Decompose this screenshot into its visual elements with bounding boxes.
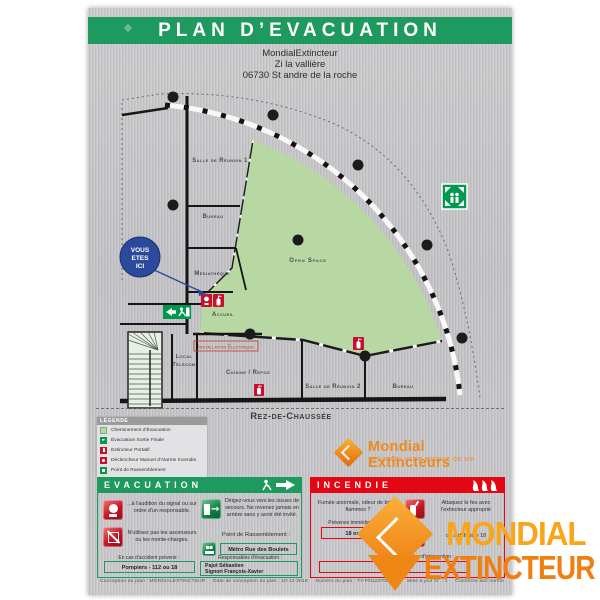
flame-diamond-icon [334, 438, 364, 468]
incendie-responsible-value [319, 561, 469, 573]
room-label-local-telecom-1: Local [176, 354, 193, 360]
poster-title: PLAN D’EVACUATION [158, 20, 442, 41]
address-line-1: MondialExtincteur [150, 48, 450, 59]
room-label-mediatheque: Médiathèque [194, 271, 229, 277]
legend: Légende Cheminement d'Évacuation Évacuat… [97, 417, 207, 477]
exit-direction-icon [201, 499, 221, 519]
evacuation-responsible-names: Pajot Sébastien Signori François-Xavier [200, 561, 298, 576]
assembly-icon [100, 467, 107, 474]
extinguisher-icon-cuisine [254, 384, 264, 396]
legend-item: Cheminement d'Évacuation [97, 425, 207, 435]
assembly-point-label: Point de Rassemblement : [212, 532, 300, 538]
extinguisher-icon-openspace [353, 337, 364, 350]
alarm-icon [100, 457, 107, 464]
address-line-2: Zi la vallière [150, 59, 450, 70]
legend-item: Extincteur Portatif [97, 445, 207, 455]
evacuation-plan-poster: PLAN D’EVACUATION MondialExtincteur Zi l… [88, 8, 512, 595]
plan-metadata-footer: Conception du plan : MONDIALEXTINCTEUR D… [100, 579, 504, 584]
extinguisher-icon-accueil [213, 294, 224, 307]
svg-text:VOUS: VOUS [131, 247, 150, 254]
manual-alarm-icon [201, 294, 212, 307]
dashed-separator [96, 408, 504, 409]
running-man-arrow-icon [262, 479, 296, 491]
fire-extinguisher-icon [405, 499, 425, 519]
svg-text:ETES: ETES [132, 255, 150, 262]
assembly-point-value: Métro Rue des Boulets [220, 543, 297, 555]
room-label-installation-electrique: Installation Électrique [198, 344, 254, 351]
room-label-bureau-1: Bureau [203, 214, 224, 220]
fire-notify-label: Prévenez immédiatement : [315, 520, 401, 526]
evacuation-signal-text: ...à l'audition du signal ou sur ordre d… [126, 501, 198, 515]
diamond-icon [123, 24, 131, 32]
evacuation-elevator-text: N'utilisez pas les ascenseurs ou les mon… [126, 530, 198, 544]
brand-name: Mondial Extincteurs [368, 439, 505, 471]
evacuation-instructions-panel: ...à l'audition du signal ou sur ordre d… [97, 492, 302, 578]
you-are-here-badge: VOUS ETES ICI [120, 237, 206, 296]
room-label-cuisine-repos: Cuisine / Repos [226, 370, 270, 376]
extinguisher-icon [100, 447, 107, 454]
legend-item: Point de Rassemblement [97, 465, 207, 475]
room-label-open-space: Open Space [289, 258, 326, 264]
brand-logo: Mondial Extincteurs sécuriser votre espa… [335, 436, 505, 472]
evacuation-path-swatch-icon [100, 427, 107, 434]
brand-tagline: sécuriser votre espace de vie [369, 456, 475, 463]
poster-title-bar: PLAN D’EVACUATION [88, 17, 512, 44]
accident-value: Pompiers - 112 ou 18 [104, 561, 195, 573]
alarm-signal-icon [103, 500, 123, 520]
fire-fallback-text: ou à défaut le 18 [429, 533, 503, 540]
fire-alert-text: Fumée anormale, odeur de brûlé, flammes … [315, 500, 401, 514]
emergency-exit-sign-icon [163, 305, 191, 319]
address-line-3: 06730 St andre de la roche [150, 70, 450, 81]
emergency-phone-icon [405, 527, 425, 547]
floor-label: Rez-de-Chaussée [231, 411, 351, 422]
room-label-salle-reunion-1: Salle de Réunion 1 [192, 158, 248, 164]
incendie-responsible-label: Responsables d'intervention : [366, 554, 476, 560]
room-label-bureau-2: Bureau [393, 384, 414, 390]
flames-icon [471, 479, 499, 491]
room-label-salle-reunion-2: Salle de Réunion 2 [305, 384, 361, 390]
floor-plan: Installation Électrique Salle de Réunion… [90, 88, 510, 423]
assembly-point-small-icon [202, 542, 216, 556]
evacuation-section-header: EVACUATION [97, 477, 302, 492]
fire-attack-text: Attaquez le feu avec l'extincteur approp… [429, 500, 503, 514]
legend-item: Évacuation Sortie Finale [97, 435, 207, 445]
svg-text:ICI: ICI [136, 263, 145, 270]
exit-icon [100, 437, 107, 444]
no-elevator-icon [103, 527, 123, 547]
staircase [128, 332, 162, 408]
assembly-point-icon [442, 184, 467, 209]
incendie-section-header: INCENDIE [310, 477, 505, 492]
evacuation-exits-text: Dirigez-vous vers les issues de secours.… [224, 498, 300, 519]
brand-watermark-small [94, 25, 164, 36]
room-label-local-telecom-2: Télécom [172, 362, 196, 368]
room-label-accueil: Accueil [212, 312, 234, 318]
incendie-instructions-panel: Fumée anormale, odeur de brûlé, flammes … [310, 492, 505, 578]
fire-notify-value: 18 ou 112 [321, 527, 395, 539]
legend-item: Déclencheur Manuel d'Alarme Incendie [97, 455, 207, 465]
legend-header: Légende [97, 417, 207, 425]
